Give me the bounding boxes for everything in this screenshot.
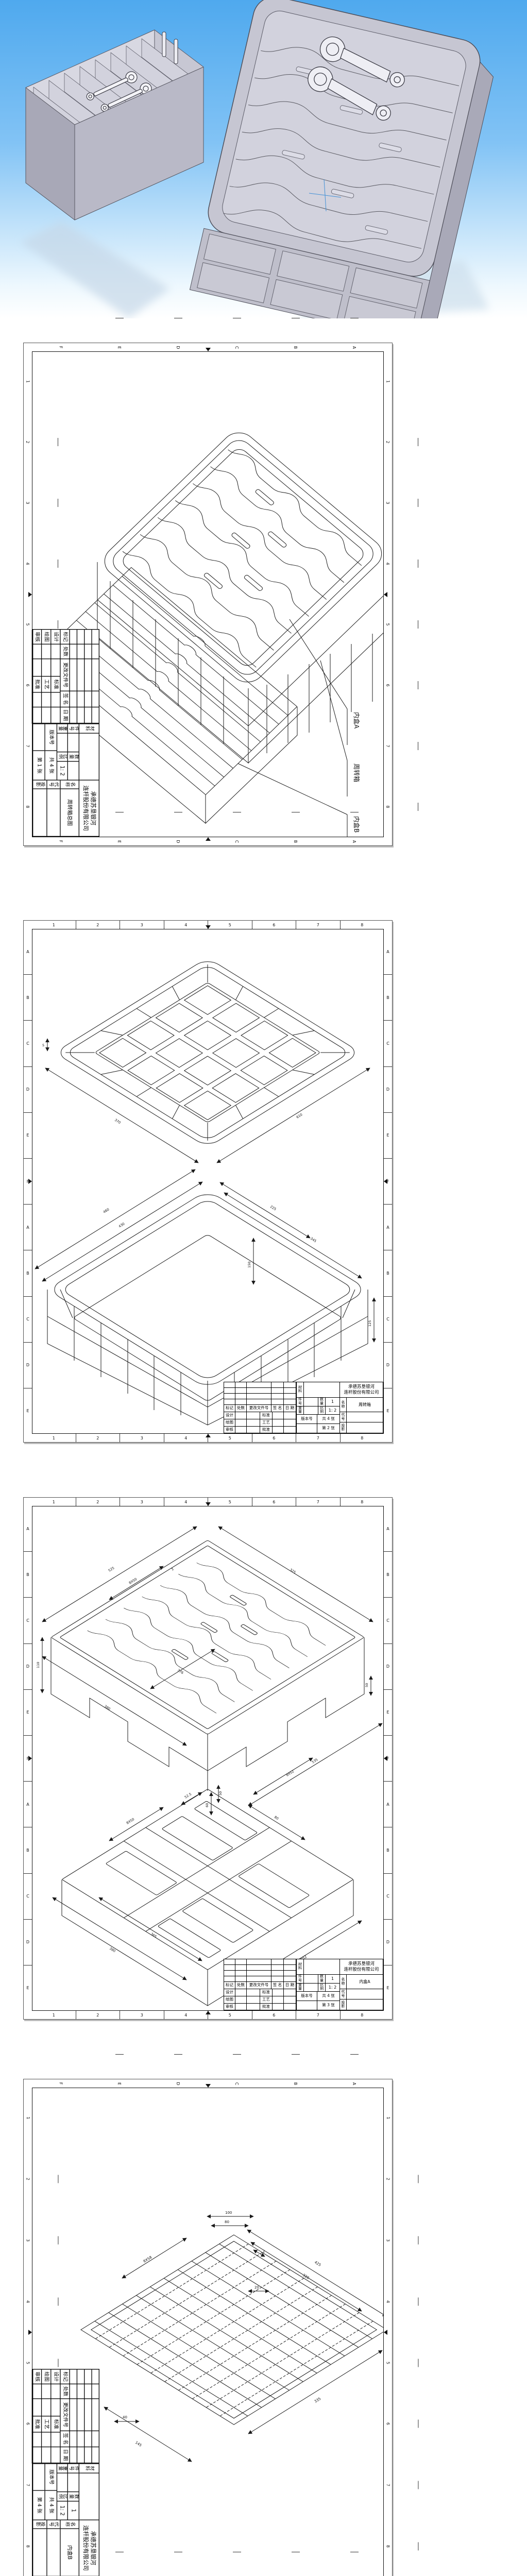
- zone-label: B: [384, 1250, 392, 1296]
- drawing-sheet-2: 12345678 12345678 ABCDEFABCDE ABCDEFABCD…: [23, 920, 393, 1443]
- zone-label: 5: [208, 1498, 252, 1506]
- view2-dimensions: [35, 1170, 374, 1342]
- dim-label: 370: [114, 1118, 122, 1125]
- leader-lines: [238, 619, 347, 837]
- label-draft: 绘图: [41, 630, 50, 645]
- label-change-doc: 更改文件号: [247, 1982, 271, 1989]
- part-name-value: 周转箱总图: [61, 789, 79, 836]
- zone-label: 7: [296, 921, 340, 929]
- label-projection: 投影: [33, 781, 46, 789]
- dim-label: 320: [302, 2273, 310, 2280]
- zone-label: 6: [252, 921, 296, 929]
- drawing-sheet-1: FEDCBA FEDCBA 12345678 12345678: [23, 343, 393, 846]
- zone-label: 1: [32, 1498, 76, 1506]
- label-version: 版本号: [297, 1992, 317, 2001]
- crate-isometric: [97, 427, 384, 689]
- dim-label: 8X50: [126, 1817, 135, 1825]
- dim-label: 3: [171, 1567, 175, 1572]
- zone-label: A: [384, 1506, 392, 1551]
- zone-label: C: [24, 1296, 32, 1342]
- label-draft: 绘图: [224, 1996, 235, 2004]
- zone-label: 1: [32, 921, 76, 929]
- title-block: 标记 处数 更改文件号 签 名 日 期 设计 标准 绘图 工艺 审核 批准 材料: [224, 1959, 383, 2010]
- dim-label: 110: [36, 1662, 40, 1668]
- label-design: 设计: [224, 1989, 235, 1996]
- sheet3-inner-box-views: 525 8X50 3 325 110 376 380 60 8X52 535 5…: [32, 1506, 384, 2011]
- label-weight: 重量: [57, 2464, 68, 2473]
- zone-label: 7: [296, 1498, 340, 1506]
- sheet-number: 第 4 张: [33, 2491, 44, 2520]
- material-value: [79, 2473, 98, 2520]
- company-name: 承德苏垦银河 连杆股份有限公司: [340, 1959, 383, 1975]
- view1-dimensions: [45, 1039, 370, 1163]
- dim-label: 52.5: [184, 1792, 193, 1799]
- dim-label: 80: [274, 1815, 279, 1821]
- zone-label: 6: [252, 2011, 296, 2019]
- zone-label: D: [24, 1919, 32, 1965]
- title-block-rotated: 标记 处数 更改文件号 签 名 日 期 设计 标准 绘图 工艺 审核 批准 材料: [32, 629, 99, 837]
- scale-value: 1: 2: [326, 1984, 339, 1992]
- label-code: 代号: [47, 2520, 60, 2529]
- dim-label: 100: [225, 2211, 232, 2215]
- zone-label: A: [384, 1781, 392, 1827]
- label-draft: 绘图: [224, 1419, 235, 1427]
- zone-label: 1: [32, 1434, 76, 1442]
- label-scale: 比例: [318, 1984, 326, 1992]
- crate-bottom-view: [55, 958, 361, 1147]
- zone-label: B: [24, 1827, 32, 1873]
- company-name: 承德苏垦银河 连杆股份有限公司: [79, 2520, 99, 2576]
- label-material: 材料: [297, 1382, 304, 1397]
- zone-label: C: [24, 1020, 32, 1066]
- company-name: 承德苏垦银河 连杆股份有限公司: [79, 781, 99, 836]
- label-code: 代号: [340, 1412, 347, 1422]
- title-block: 标记 处数 更改文件号 签 名 日 期 设计 标准 绘图 工艺 审核 批准 材料: [224, 1382, 383, 1433]
- label-process: 工艺: [260, 1419, 273, 1427]
- zone-label: 5: [208, 1434, 252, 1442]
- label-part-no: 件号: [297, 1975, 304, 1983]
- dim-label: 8X50: [128, 1577, 138, 1585]
- label-approve: 批准: [260, 1427, 273, 1434]
- fin-tray-isometric: [81, 2235, 384, 2425]
- label-name: 名称: [61, 2520, 79, 2529]
- label-code: 代号: [340, 1989, 347, 1999]
- dim-label: 20: [254, 2285, 259, 2290]
- quantity-value: 1: [69, 2501, 79, 2519]
- wavy-tray-view: [51, 1540, 364, 1734]
- label-check: 审核: [224, 2004, 235, 2011]
- zone-label: E: [24, 1965, 32, 2011]
- material-value: [304, 1959, 339, 1974]
- title-block-rotated: 标记 处数 更改文件号 签 名 日 期 设计 标准 绘图 工艺 审核 批准 材料: [32, 2369, 99, 2576]
- dim-label: 60: [205, 1803, 209, 1807]
- label-part-no: 件号: [69, 724, 79, 734]
- label-count: 处数: [235, 1982, 247, 1989]
- zone-label: A: [24, 1506, 32, 1551]
- dimension-lines: [104, 2216, 384, 2462]
- zone-label: E: [384, 1388, 392, 1434]
- label-mark: 标记: [60, 2369, 69, 2384]
- label-standard: 标准: [50, 676, 60, 692]
- scale-value: 1: 2: [57, 2501, 68, 2519]
- title-block: 标记 处数 更改文件号 签 名 日 期 设计 标准 绘图 工艺 审核 批准 材料: [32, 629, 99, 837]
- scale-value: 1: 2: [326, 1406, 339, 1415]
- revision-table: 标记 处数 更改文件号 签 名 日 期 设计 标准 绘图 工艺 审核 批准: [224, 1382, 296, 1433]
- label-design: 设计: [224, 1412, 235, 1419]
- label-part-no: 件号: [297, 1398, 304, 1406]
- label-material: 材料: [79, 2464, 98, 2473]
- label-process: 工艺: [260, 1996, 273, 2004]
- dim-label: 460: [103, 1207, 110, 1214]
- dim-label: 225: [269, 1205, 277, 1211]
- label-process: 工艺: [41, 676, 50, 692]
- sheet2-crate-views: 370 610 5 460 43: [32, 929, 384, 1434]
- dim-label: 430: [118, 1222, 126, 1228]
- label-standard: 标准: [260, 1989, 273, 1996]
- zone-label: A: [384, 1204, 392, 1250]
- label-standard: 标准: [260, 1412, 273, 1419]
- part-label-inner-b: 内盒B: [353, 816, 361, 833]
- dim-label: 2: [263, 2249, 265, 2253]
- zone-label: C: [384, 1873, 392, 1919]
- label-weight: 重量: [297, 1984, 304, 1992]
- zone-label: A: [24, 1204, 32, 1250]
- label-code: 代号: [47, 781, 60, 789]
- title-block: 标记 处数 更改文件号 签 名 日 期 设计 标准 绘图 工艺 审核 批准 材料: [224, 1959, 383, 2010]
- dim-label: 345: [310, 1236, 317, 1243]
- total-sheets: 共 4 张: [317, 1992, 339, 2001]
- zone-label: E: [384, 1112, 392, 1158]
- view1-dimensions: [42, 1527, 382, 1815]
- label-projection: 投影: [340, 1999, 347, 2010]
- bottom-grid: [99, 986, 316, 1120]
- zone-label: E: [24, 1388, 32, 1434]
- revision-table: 标记 处数 更改文件号 签 名 日 期 设计 标准 绘图 工艺 审核 批准: [33, 2369, 98, 2463]
- wall-dividers: [65, 964, 350, 1141]
- zone-label: B: [24, 1551, 32, 1597]
- zone-label: 3: [120, 1434, 164, 1442]
- dim-label: 40: [123, 2415, 127, 2419]
- label-count: 处数: [60, 645, 69, 659]
- zone-label: 3: [120, 921, 164, 929]
- zone-label: 2: [76, 1434, 120, 1442]
- zone-label: 2: [76, 1498, 120, 1506]
- label-date: 日 期: [60, 707, 69, 723]
- dim-label: 80: [225, 2220, 229, 2224]
- total-sheets: 共 4 张: [45, 751, 56, 780]
- zone-label: 7: [296, 1434, 340, 1442]
- dim-label: 425: [314, 2260, 322, 2267]
- label-design: 设计: [50, 2369, 60, 2384]
- label-date: 日 期: [284, 1982, 296, 1989]
- label-date: 日 期: [284, 1405, 296, 1412]
- label-sign: 签 名: [60, 691, 69, 707]
- label-sign: 签 名: [60, 2431, 69, 2447]
- cad-render-scene: [0, 0, 527, 318]
- label-change-doc: 更改文件号: [247, 1405, 271, 1412]
- zone-label: 8: [340, 2011, 384, 2019]
- label-quantity: 数量: [69, 752, 79, 761]
- label-check: 审核: [32, 2369, 41, 2384]
- dim-label: 50: [218, 1791, 223, 1795]
- zone-label: C: [384, 1020, 392, 1066]
- zone-label: A: [384, 929, 392, 974]
- label-material: 材料: [297, 1959, 304, 1974]
- label-name: 名称: [340, 1398, 347, 1412]
- zone-label: 5: [208, 2011, 252, 2019]
- zone-label: D: [384, 1066, 392, 1112]
- zone-label: B: [384, 1827, 392, 1873]
- zone-label: E: [24, 1689, 32, 1735]
- label-material: 材料: [79, 724, 98, 734]
- dim-label: 8X52: [285, 1769, 295, 1777]
- quantity-value: 1: [326, 1398, 339, 1406]
- total-sheets: 共 4 张: [317, 1415, 339, 1423]
- drawing-sheet-3: 12345678 12345678 ABCDEFABCDE ABCDEFABCD…: [23, 1497, 393, 2020]
- label-design: 设计: [50, 630, 60, 645]
- label-mark: 标记: [60, 630, 69, 645]
- label-check: 审核: [32, 630, 41, 645]
- zone-label: 3: [120, 1498, 164, 1506]
- crate-body: [97, 553, 384, 763]
- zone-label: 7: [296, 2011, 340, 2019]
- label-mark: 标记: [224, 1405, 235, 1412]
- crate-floor: [73, 1234, 342, 1401]
- label-quantity: 数量: [69, 2492, 79, 2501]
- quantity-value: 1: [326, 1975, 339, 1983]
- zone-label: D: [24, 1342, 32, 1388]
- dim-label: 150: [247, 1262, 251, 1268]
- label-draft: 绘图: [41, 2369, 50, 2384]
- sheet-number: 第 1 张: [33, 751, 44, 780]
- label-scale: 比例: [318, 1406, 326, 1415]
- label-approve: 批准: [260, 2004, 273, 2011]
- quantity-value: [69, 761, 79, 779]
- label-quantity: 数量: [318, 1398, 326, 1406]
- label-name: 名称: [61, 781, 79, 789]
- zone-label: 3: [120, 2011, 164, 2019]
- zone-label: 4: [164, 921, 208, 929]
- title-block: 标记 处数 更改文件号 签 名 日 期 设计 标准 绘图 工艺 审核 批准 材料: [224, 1382, 383, 1433]
- zone-label: E: [24, 1112, 32, 1158]
- dim-label: 50: [365, 1683, 369, 1687]
- zone-label: 8: [340, 921, 384, 929]
- dim-label: 380: [104, 1704, 111, 1711]
- zone-label: B: [384, 974, 392, 1020]
- zone-label: 6: [252, 1498, 296, 1506]
- material-value: [79, 734, 98, 780]
- zone-label: 2: [76, 2011, 120, 2019]
- zone-label: C: [24, 1873, 32, 1919]
- company-name: 承德苏垦银河 连杆股份有限公司: [340, 1382, 383, 1398]
- zone-label: 8: [340, 1498, 384, 1506]
- zone-label: 6: [252, 1434, 296, 1442]
- wavy-dividers: [121, 444, 369, 667]
- part-name-value: 内盒B: [61, 2529, 79, 2576]
- zone-label: 4: [164, 1498, 208, 1506]
- revision-table: 标记 处数 更改文件号 签 名 日 期 设计 标准 绘图 工艺 审核 批准: [224, 1959, 296, 2010]
- dim-label: 5: [42, 1043, 44, 1047]
- label-weight: 重量: [57, 724, 68, 734]
- zone-label: A: [24, 929, 32, 974]
- zone-label: B: [24, 1250, 32, 1296]
- label-count: 处数: [235, 1405, 247, 1412]
- label-quantity: 数量: [318, 1975, 326, 1983]
- label-standard: 标准: [50, 2416, 60, 2432]
- zone-label: C: [384, 1296, 392, 1342]
- zone-label: 8: [340, 1434, 384, 1442]
- zone-label: D: [384, 1919, 392, 1965]
- label-projection: 投影: [33, 2520, 46, 2529]
- zone-label: C: [24, 1597, 32, 1643]
- zone-label: 1: [32, 2011, 76, 2019]
- label-version: 版本号: [297, 1415, 317, 1423]
- zone-label: D: [24, 1643, 32, 1689]
- zone-label: 4: [164, 1434, 208, 1442]
- sheet-number: 第 2 张: [317, 1424, 339, 1433]
- label-approve: 批准: [32, 676, 41, 692]
- part-label-inner-a: 内盒A: [353, 712, 361, 729]
- label-version: 版本号: [45, 724, 56, 751]
- label-date: 日 期: [60, 2447, 69, 2463]
- part-name-value: 周转箱: [347, 1398, 383, 1412]
- title-block: 标记 处数 更改文件号 签 名 日 期 设计 标准 绘图 工艺 审核 批准 材料: [32, 2369, 99, 2576]
- revision-table: 标记 处数 更改文件号 签 名 日 期 设计 标准 绘图 工艺 审核 批准: [33, 630, 98, 723]
- zone-label: 4: [164, 2011, 208, 2019]
- zone-label: C: [384, 1597, 392, 1643]
- dim-label: 335: [314, 2397, 322, 2404]
- crate-open-view: [47, 1190, 368, 1389]
- total-sheets: 共 4 张: [45, 2491, 56, 2520]
- dim-label: 525: [108, 1566, 115, 1572]
- dim-label: 380: [109, 1946, 116, 1953]
- label-name: 名称: [340, 1975, 347, 1989]
- label-projection: 投影: [340, 1422, 347, 1433]
- label-change-doc: 更改文件号: [60, 659, 69, 691]
- scale-value: 1: 2: [57, 761, 68, 779]
- label-weight: 重量: [297, 1406, 304, 1415]
- zone-label: D: [24, 1066, 32, 1112]
- zone-label: B: [384, 1551, 392, 1597]
- dim-label: 125: [368, 1320, 372, 1327]
- label-mark: 标记: [224, 1982, 235, 1989]
- drawing-sheet-4: FEDCBA FEDCBA 12345678 12345678: [23, 2079, 393, 2576]
- zone-label: A: [24, 1781, 32, 1827]
- label-change-doc: 更改文件号: [60, 2399, 69, 2431]
- label-version: 版本号: [45, 2464, 56, 2491]
- part-label-crate: 周转箱: [353, 764, 361, 782]
- label-approve: 批准: [32, 2416, 41, 2432]
- zone-label: D: [384, 1342, 392, 1388]
- material-value: [304, 1382, 339, 1397]
- label-check: 审核: [224, 1427, 235, 1434]
- tray-walls-notched: [51, 1637, 364, 1791]
- zone-label: D: [384, 1643, 392, 1689]
- zone-label: B: [24, 974, 32, 1020]
- label-sign: 签 名: [271, 1982, 284, 1989]
- zone-label: 5: [208, 921, 252, 929]
- cad-render-3d: [0, 0, 527, 318]
- label-scale: 比例: [57, 752, 68, 761]
- zone-label: E: [384, 1965, 392, 2011]
- sheet-number: 第 3 张: [317, 2001, 339, 2010]
- slot-floors: [157, 1595, 283, 1674]
- zone-label: 2: [76, 921, 120, 929]
- label-sign: 签 名: [271, 1405, 284, 1412]
- dim-label: 145: [134, 2441, 143, 2448]
- label-process: 工艺: [41, 2416, 50, 2432]
- slot-floors: [184, 489, 316, 608]
- label-count: 处数: [60, 2384, 69, 2399]
- label-scale: 比例: [57, 2492, 68, 2501]
- part-name-value: 内盒A: [347, 1975, 383, 1989]
- zone-label: E: [384, 1689, 392, 1735]
- label-part-no: 件号: [69, 2464, 79, 2473]
- dim-label: 325: [289, 1568, 297, 1574]
